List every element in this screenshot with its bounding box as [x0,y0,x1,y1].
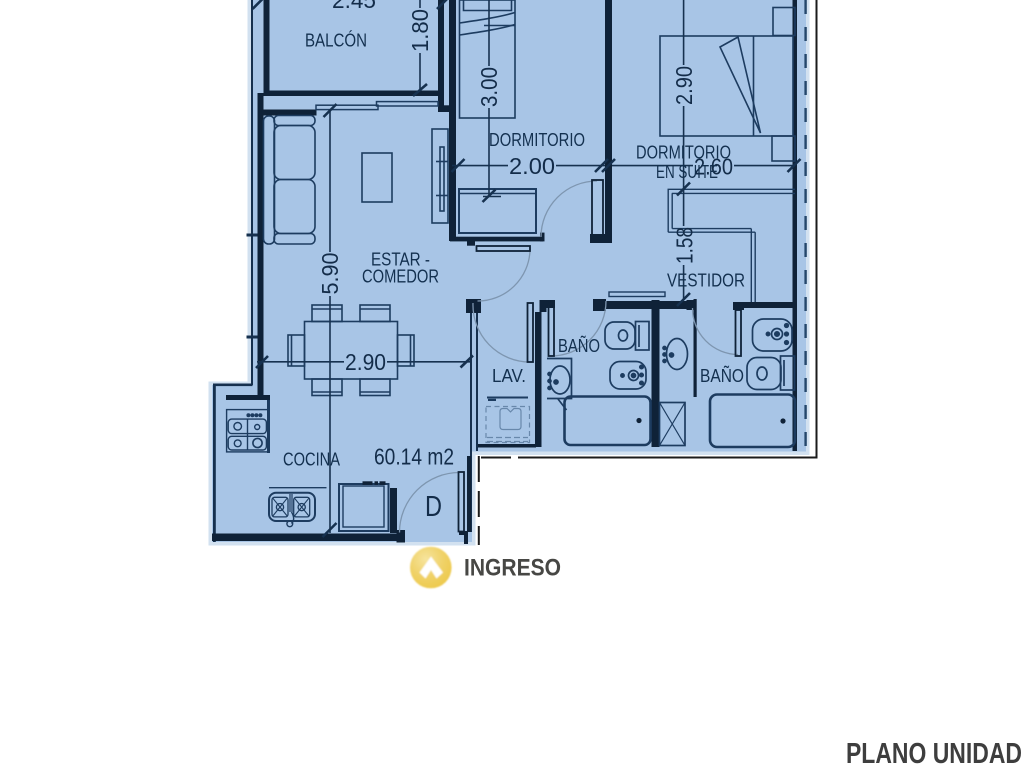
svg-text:BALCÓN: BALCÓN [305,30,367,51]
svg-text:DORMITORIO: DORMITORIO [489,129,585,150]
svg-text:60.14 m2: 60.14 m2 [374,444,454,470]
svg-text:D: D [425,491,442,523]
svg-text:VESTIDOR: VESTIDOR [667,270,745,291]
svg-text:PLANO UNIDAD: PLANO UNIDAD [846,738,1022,768]
svg-text:LAV.: LAV. [492,365,526,386]
svg-text:5.90: 5.90 [317,253,343,295]
svg-text:3.00: 3.00 [476,67,502,107]
svg-text:INGRESO: INGRESO [464,555,561,582]
svg-text:DORMITORIO: DORMITORIO [636,142,731,163]
svg-text:2.90: 2.90 [671,66,697,105]
svg-text:COMEDOR: COMEDOR [362,266,439,287]
svg-text:BAÑO: BAÑO [558,335,600,356]
svg-text:2.45: 2.45 [332,0,376,13]
svg-text:1.80: 1.80 [407,9,433,52]
svg-text:2.90: 2.90 [345,349,386,375]
svg-text:COCINA: COCINA [283,449,341,470]
svg-text:2.00: 2.00 [509,153,555,179]
svg-text:BAÑO: BAÑO [700,365,744,386]
svg-text:1.58: 1.58 [672,227,698,264]
svg-text:EN SUITE: EN SUITE [656,161,718,182]
